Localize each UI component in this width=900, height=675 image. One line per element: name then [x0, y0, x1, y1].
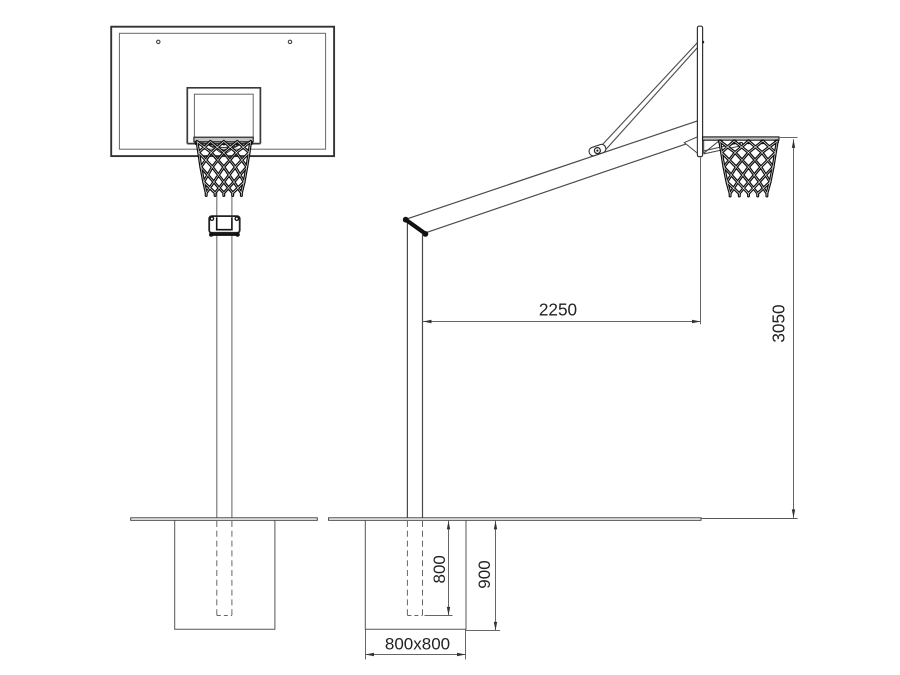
svg-text:3050: 3050: [769, 304, 789, 342]
svg-text:800x800: 800x800: [385, 634, 450, 653]
svg-text:2250: 2250: [539, 300, 577, 320]
svg-text:900: 900: [475, 560, 494, 588]
svg-text:800: 800: [430, 555, 449, 583]
